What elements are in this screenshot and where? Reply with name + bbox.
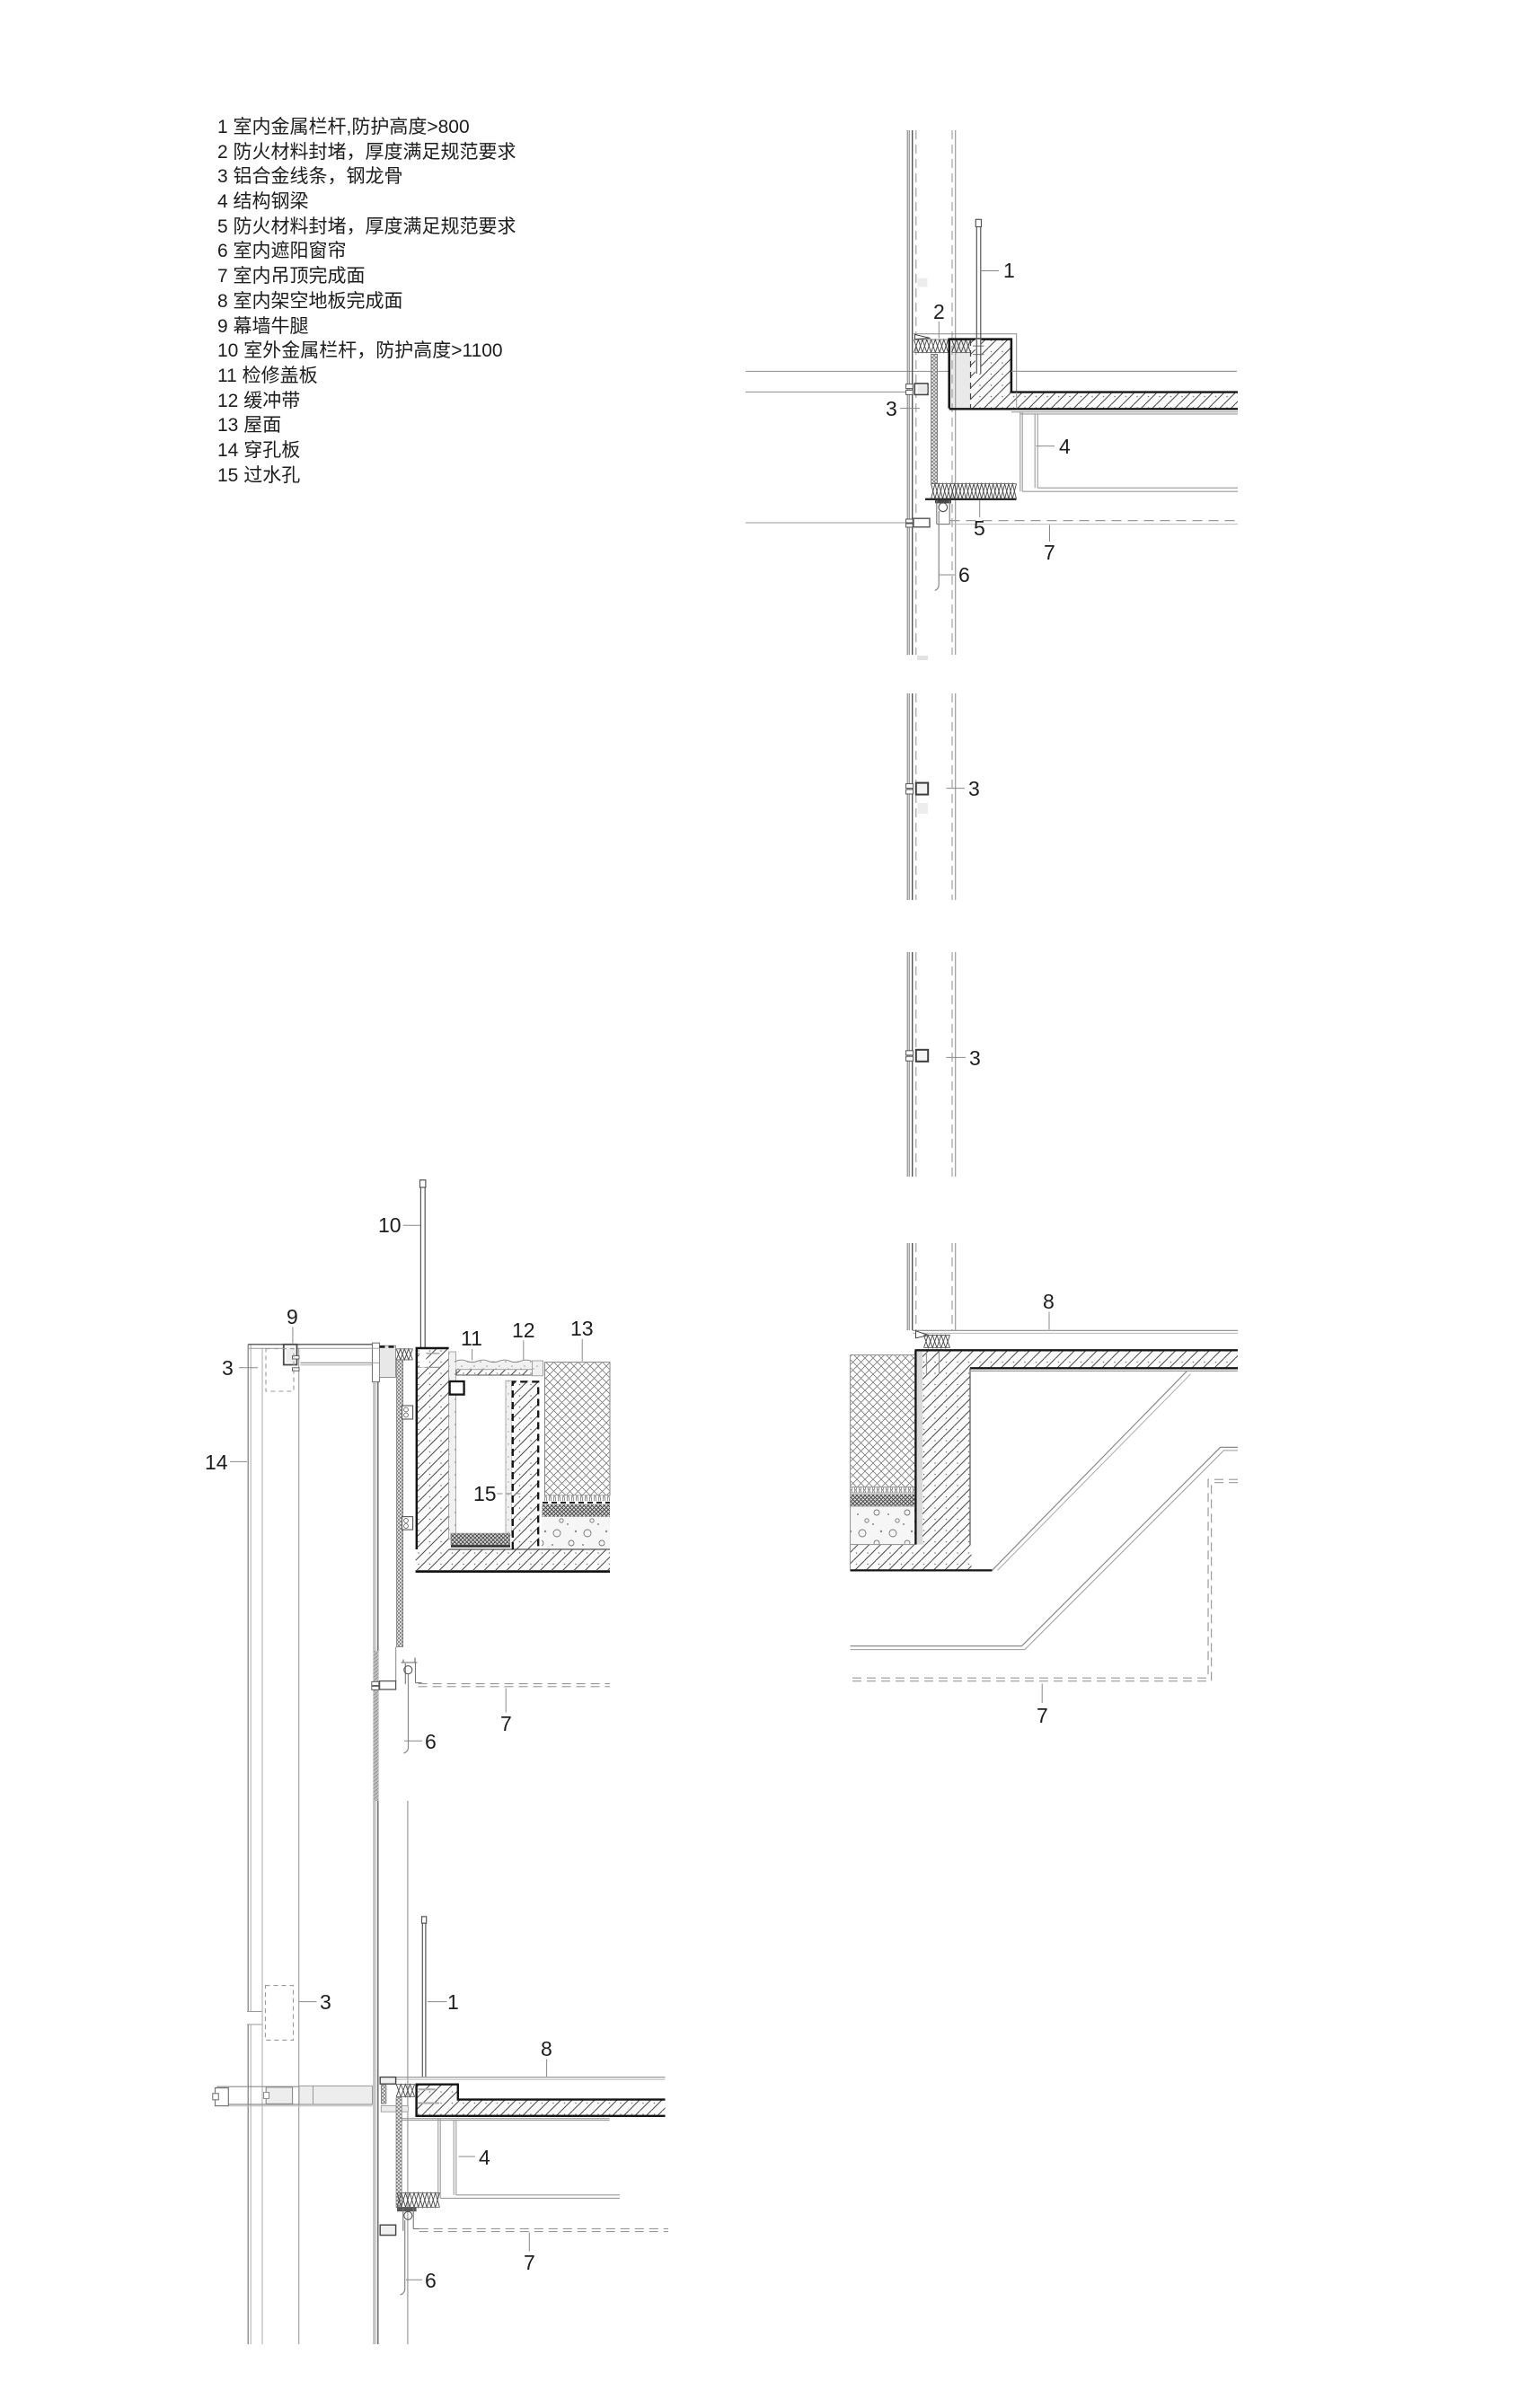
svg-text:3: 3 xyxy=(222,1356,234,1380)
svg-text:1: 1 xyxy=(1003,259,1015,282)
svg-text:6: 6 xyxy=(425,2269,437,2292)
svg-text:8 室内架空地板完成面: 8 室内架空地板完成面 xyxy=(217,291,403,312)
svg-text:5 防火材料封堵，厚度满足规范要求: 5 防火材料封堵，厚度满足规范要求 xyxy=(217,216,516,237)
svg-text:11 检修盖板: 11 检修盖板 xyxy=(217,366,318,386)
svg-text:3: 3 xyxy=(968,777,980,800)
svg-text:7: 7 xyxy=(524,2251,535,2274)
svg-text:2: 2 xyxy=(933,300,945,323)
svg-text:3 铝合金线条，钢龙骨: 3 铝合金线条，钢龙骨 xyxy=(217,166,403,187)
svg-text:6 室内遮阳窗帘: 6 室内遮阳窗帘 xyxy=(217,241,347,261)
svg-text:4: 4 xyxy=(1059,435,1071,458)
svg-text:4 结构钢梁: 4 结构钢梁 xyxy=(217,191,309,212)
svg-text:2 防火材料封堵，厚度满足规范要求: 2 防火材料封堵，厚度满足规范要求 xyxy=(217,142,516,163)
svg-text:7: 7 xyxy=(500,1712,512,1735)
svg-text:5: 5 xyxy=(974,516,985,540)
svg-text:8: 8 xyxy=(1043,1290,1055,1313)
svg-text:3: 3 xyxy=(320,1990,331,2014)
svg-text:11: 11 xyxy=(461,1327,482,1350)
svg-text:7: 7 xyxy=(1044,541,1055,564)
svg-text:14: 14 xyxy=(205,1451,228,1474)
svg-text:3: 3 xyxy=(886,397,897,420)
svg-text:10: 10 xyxy=(378,1213,402,1237)
svg-text:1 室内金属栏杆,防护高度>800: 1 室内金属栏杆,防护高度>800 xyxy=(217,117,470,137)
svg-text:13 屋面: 13 屋面 xyxy=(217,415,281,436)
svg-text:9 幕墙牛腿: 9 幕墙牛腿 xyxy=(217,316,309,337)
svg-text:8: 8 xyxy=(541,2037,552,2060)
svg-text:1: 1 xyxy=(447,1990,459,2014)
svg-text:13: 13 xyxy=(570,1317,594,1340)
svg-text:4: 4 xyxy=(479,2146,490,2169)
svg-text:15 过水孔: 15 过水孔 xyxy=(217,465,300,486)
svg-text:3: 3 xyxy=(969,1046,981,1070)
svg-text:15: 15 xyxy=(473,1482,497,1505)
svg-text:12 缓冲带: 12 缓冲带 xyxy=(217,391,300,411)
svg-text:6: 6 xyxy=(425,1730,437,1753)
svg-text:10 室外金属栏杆，防护高度>1100: 10 室外金属栏杆，防护高度>1100 xyxy=(217,340,503,361)
svg-text:9: 9 xyxy=(287,1305,298,1328)
svg-text:7 室内吊顶完成面: 7 室内吊顶完成面 xyxy=(217,266,366,287)
svg-text:6: 6 xyxy=(958,563,970,587)
svg-text:12: 12 xyxy=(512,1319,535,1342)
svg-text:7: 7 xyxy=(1037,1704,1048,1727)
svg-text:14 穿孔板: 14 穿孔板 xyxy=(217,440,300,461)
